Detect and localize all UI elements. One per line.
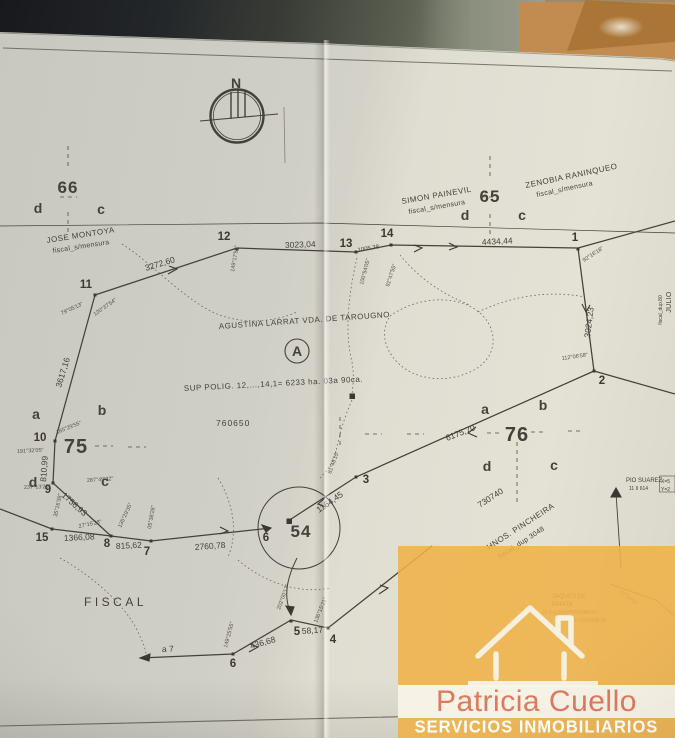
coordinate-box-x: X=5 — [661, 479, 670, 485]
angle-at-1: 92°16'18" — [582, 246, 605, 264]
angle-at-6: 149°25'55" — [223, 621, 236, 648]
agency-tagline: SERVICIOS INMOBILIARIOS — [398, 717, 675, 738]
vertex-label-1: 1 — [572, 232, 579, 244]
photo-of-survey-map: N — [0, 0, 675, 738]
angle-at-8a: 35°16'38" — [53, 493, 64, 517]
watermark-brand-band: Patricia Cuello — [398, 685, 675, 718]
reference-a: A — [292, 343, 302, 359]
angle-at-8b: 27°15'28" — [78, 519, 102, 530]
quadrant-76-a: a — [481, 401, 489, 417]
sheet-ref-760650: 760650 — [216, 418, 250, 428]
distance-14-1: 4434,44 — [482, 235, 513, 247]
distance-2-3: 6175,70 — [444, 422, 477, 442]
vertex-label-4: 4 — [330, 634, 337, 646]
angle-at-7b: 05°38'28" — [147, 505, 157, 529]
angle-at-14: 92°47'55" — [385, 263, 398, 287]
quadrant-75-a: a — [32, 406, 40, 422]
angle-at-5: 136°15'21" — [313, 597, 329, 624]
angle-at-13: 100°54'05" — [359, 258, 372, 285]
area-statement: SUP POLIG. 12,...,14,1= 6233 ha. 03a 90c… — [184, 375, 364, 393]
distance-1-2: 3024,23 — [582, 306, 596, 338]
parcel-66: 66 — [58, 178, 79, 197]
distance-15-8: 1366,08 — [64, 531, 95, 543]
owner-julio-note: fiscal_dup.80 — [658, 295, 664, 325]
distance-11-10: 3617,16 — [53, 356, 72, 389]
agency-name: Patricia Cuello — [436, 685, 637, 719]
distance-3-54: 1164,45 — [314, 489, 345, 515]
vertex-label-2: 2 — [599, 375, 605, 387]
vertex-label-6: 6 — [263, 532, 269, 544]
distance-5-4: 58,17 — [301, 625, 323, 636]
house-icon — [458, 596, 608, 690]
north-compass — [200, 90, 285, 164]
quadrant-75-b: b — [98, 402, 107, 418]
vertex-label-6b: 6 — [230, 658, 236, 670]
agency-watermark: Patricia Cuello SERVICIOS INMOBILIARIOS — [398, 546, 675, 738]
direction-note-a7: a 7 — [162, 644, 174, 654]
quadrant-66-d: d — [34, 200, 43, 216]
angle-at-11b: 120°37'54" — [93, 297, 118, 317]
quadrant-65-c: c — [518, 207, 526, 223]
vertex-label-15: 15 — [36, 532, 49, 544]
fiscal-label: FISCAL — [84, 595, 147, 609]
parcel-76: 76 — [505, 424, 529, 446]
distance-12-13: 3023,04 — [285, 239, 316, 250]
angle-at-9a: 237°13'25" — [24, 484, 51, 491]
distance-8-7: 815,62 — [116, 540, 143, 551]
vertex-label-5: 5 — [294, 626, 301, 638]
compass-n-label: N — [231, 75, 241, 91]
grid-ticks — [60, 146, 584, 505]
parcel-65: 65 — [480, 187, 501, 206]
angle-at-11a: 79°05'13" — [60, 301, 84, 316]
parcel-75: 75 — [64, 436, 88, 458]
coordinate-box-y: Y=2 — [661, 487, 670, 493]
vertex-label-8: 8 — [104, 538, 111, 550]
angle-at-7a: 135°29'35" — [117, 502, 134, 529]
owner-pio-suarez: PIO SUAREZ — [626, 478, 663, 484]
vertex-label-10: 10 — [34, 432, 47, 444]
owner-agustina-larrat: AGUSTINA LARRAT VDA. DE TAROUGNO — [219, 310, 391, 331]
owner-pio-suarez-note: 11 II 614 — [629, 486, 648, 492]
coordinate-box: X=5 Y=2 — [660, 476, 675, 493]
quadrant-76-d: d — [483, 458, 492, 474]
angle-at-9b: 287°49'32" — [87, 476, 114, 484]
distance-9-8: 1756,93 — [60, 490, 90, 518]
owner-julio: JULIO — [666, 291, 673, 313]
angle-at-2: 112°06'58" — [561, 352, 588, 362]
angle-at-10a: 191°32'05" — [17, 448, 44, 455]
angle-at-3: 81°48'15" — [327, 450, 341, 474]
quadrant-65-d: d — [461, 207, 470, 223]
station-54: 54 — [291, 522, 312, 541]
distance-6-5: 436,68 — [249, 634, 277, 651]
vertex-label-14: 14 — [381, 228, 394, 240]
vertex-label-11: 11 — [80, 279, 93, 291]
distance-10-9: 810,99 — [38, 455, 50, 482]
vertex-label-13: 13 — [340, 238, 353, 250]
sheet-ref-730740: 730740 — [476, 486, 505, 510]
quadrant-76-c: c — [550, 457, 558, 473]
quadrant-66-c: c — [97, 201, 105, 217]
vertex-label-7: 7 — [144, 546, 150, 558]
vertex-label-12: 12 — [218, 231, 231, 243]
distance-7-6: 2760,78 — [194, 540, 226, 552]
distance-13-14: 1005,38 — [357, 244, 380, 254]
quadrant-76-b: b — [539, 397, 548, 413]
vertex-label-3: 3 — [363, 474, 369, 486]
